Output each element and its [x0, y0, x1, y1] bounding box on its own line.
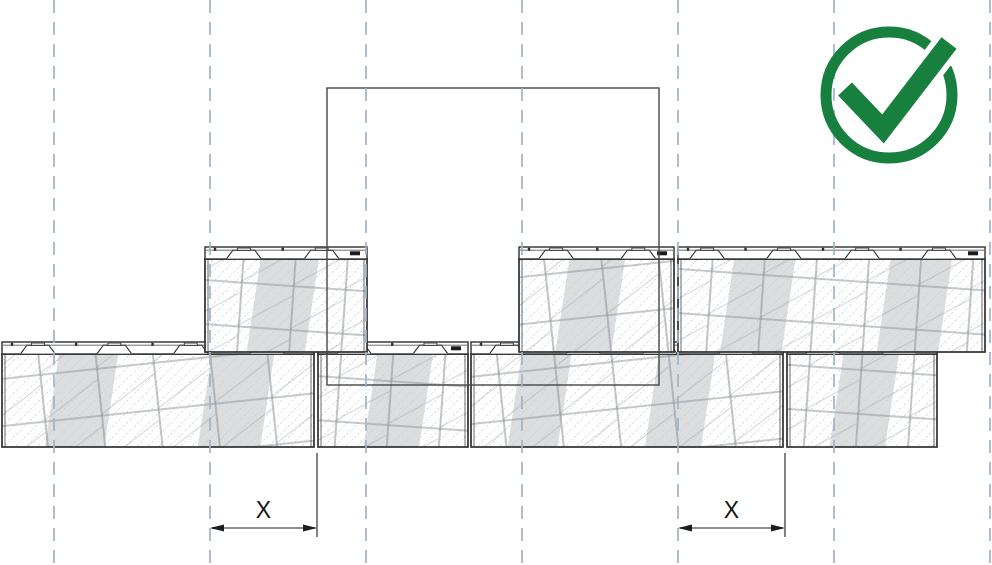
cap-tick	[596, 248, 598, 251]
cap-tick	[480, 343, 482, 346]
wall-block	[678, 247, 985, 352]
dimension-label: X	[256, 497, 271, 523]
cap-tick	[282, 248, 284, 251]
wall-block	[471, 342, 783, 447]
cap-notch	[767, 250, 801, 258]
dimension-label: X	[724, 497, 739, 523]
cap-notch	[922, 250, 956, 258]
wall-block	[787, 342, 937, 447]
block-courses	[2, 247, 985, 447]
wall-block	[205, 247, 367, 352]
upper-course	[205, 247, 985, 352]
cap-notch	[414, 345, 448, 353]
cap-notch	[690, 250, 724, 258]
cap-tick	[822, 248, 824, 251]
cap-notch	[97, 345, 131, 353]
arrowhead-right-icon	[303, 525, 317, 532]
cap-tick	[214, 248, 216, 251]
dimension-x-left: X	[210, 453, 317, 537]
diagram-canvas: XX	[0, 0, 992, 565]
cap-tick	[744, 248, 746, 251]
cap-tick	[687, 248, 689, 251]
cap-marker	[968, 251, 978, 255]
cap-tick	[528, 248, 530, 251]
arrowhead-left-icon	[678, 525, 692, 532]
cap-tick	[391, 343, 393, 346]
cap-tick	[75, 343, 77, 346]
lower-course	[2, 342, 937, 447]
installation-diagram: XX	[0, 0, 992, 565]
cap-marker	[350, 251, 360, 255]
wall-block	[519, 247, 674, 352]
check-circle-icon	[826, 32, 952, 158]
cap-notch	[845, 250, 879, 258]
arrowhead-right-icon	[771, 525, 785, 532]
cap-tick	[899, 248, 901, 251]
cap-notch	[227, 250, 261, 258]
cap-notch	[174, 345, 208, 353]
cap-notch	[539, 250, 573, 258]
cap-tick	[151, 343, 153, 346]
wall-block	[318, 342, 468, 447]
wall-block	[2, 342, 314, 447]
dimension-x-right: X	[678, 453, 785, 537]
cap-notch	[305, 250, 339, 258]
arrowhead-left-icon	[210, 525, 224, 532]
cap-notch	[621, 250, 655, 258]
cap-notch	[21, 345, 55, 353]
cap-marker	[451, 346, 461, 350]
cap-tick	[11, 343, 13, 346]
